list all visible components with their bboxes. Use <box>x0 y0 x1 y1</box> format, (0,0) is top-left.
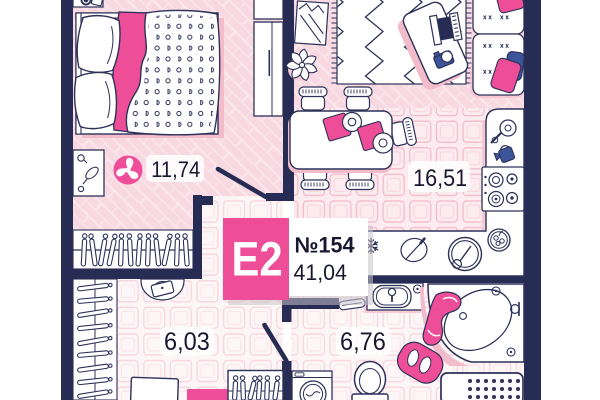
svg-text:6,76: 6,76 <box>340 328 386 356</box>
svg-text:№154: №154 <box>295 232 355 257</box>
svg-text:6,03: 6,03 <box>164 328 210 356</box>
svg-text:11,74: 11,74 <box>151 158 200 182</box>
svg-text:41,04: 41,04 <box>294 260 347 285</box>
svg-text:E2: E2 <box>232 232 283 286</box>
svg-text:16,51: 16,51 <box>413 164 467 191</box>
